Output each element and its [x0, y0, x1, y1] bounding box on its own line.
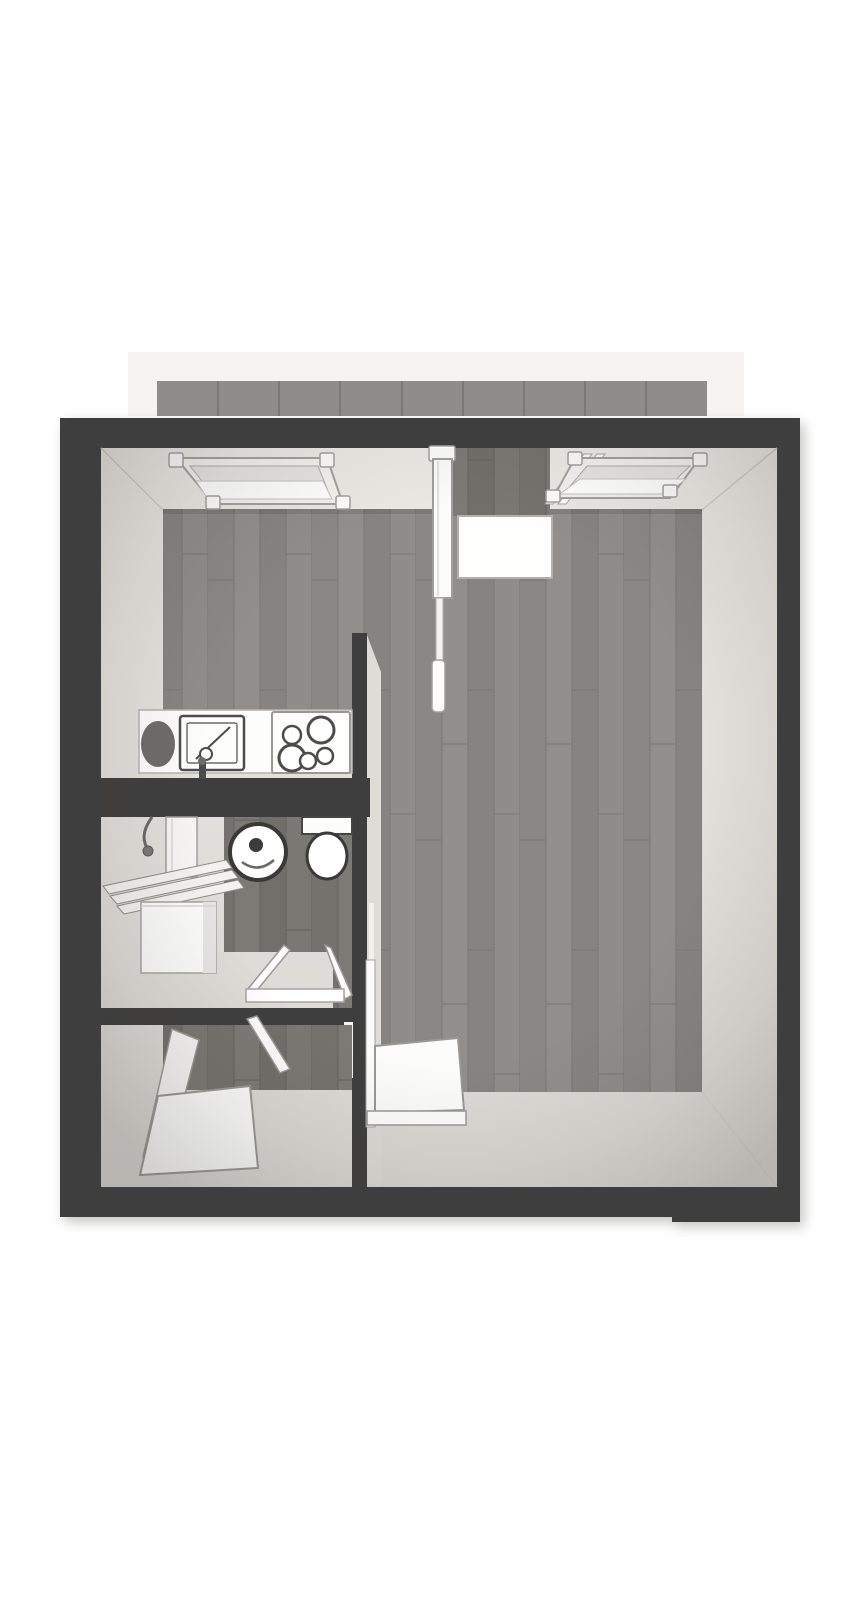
- left-window-cap: [206, 496, 220, 509]
- interior-wall-stub: [352, 633, 367, 1187]
- washing-machine-side: [203, 902, 216, 973]
- cooktop-burner: [300, 753, 316, 769]
- balcony-door-leaf: [433, 459, 452, 598]
- faucet-base: [198, 757, 206, 765]
- wood-floor-kitchen: [163, 635, 352, 711]
- kitchen: [139, 710, 352, 779]
- washbasin-drain: [249, 838, 263, 852]
- kitchen-bathroom-wall: [101, 778, 370, 817]
- toilet-tank: [302, 817, 352, 834]
- toilet-bowl: [307, 833, 347, 879]
- balcony-door-edge: [436, 598, 443, 662]
- main-room-door-jamb: [366, 960, 375, 1127]
- floor-plan-svg: [0, 0, 867, 1600]
- entry-door-panel: [140, 1086, 258, 1175]
- right-window-cap: [568, 452, 582, 465]
- cooktop-burner: [308, 717, 334, 743]
- outer-wall-bottom: [60, 1187, 672, 1217]
- drainboard: [141, 721, 175, 767]
- balcony: [128, 352, 744, 416]
- main-room-door-rail: [367, 1111, 466, 1125]
- outer-wall-left: [60, 418, 101, 1217]
- right-window-cap: [663, 485, 677, 497]
- cooktop-burner: [317, 748, 333, 764]
- balcony-panel-row: [157, 381, 707, 416]
- right-window-cap: [546, 490, 560, 502]
- left-window-cap: [336, 496, 350, 509]
- left-window-cap: [169, 453, 183, 467]
- outer-wall-top: [60, 418, 800, 448]
- right-window-cap: [693, 453, 707, 466]
- bathroom-hallway-wall: [101, 1008, 352, 1025]
- washbasin: [230, 824, 286, 880]
- balcony-door-opening: [452, 448, 550, 516]
- balcony-door-threshold: [458, 516, 552, 578]
- bathroom-door-sill: [246, 989, 344, 1002]
- shower-head: [143, 846, 153, 856]
- floor-plan-canvas: [0, 0, 867, 1600]
- balcony-door-handle-tab: [432, 660, 445, 712]
- outer-wall-bottom-right: [672, 1187, 800, 1222]
- main-room-door-frame-edge: [369, 903, 374, 961]
- cooktop-burner: [283, 726, 301, 744]
- wood-floor-main-room: [367, 635, 702, 1092]
- main-room-door-panel: [375, 1038, 464, 1113]
- outer-wall-right: [777, 418, 800, 1217]
- left-window-cap: [320, 453, 334, 467]
